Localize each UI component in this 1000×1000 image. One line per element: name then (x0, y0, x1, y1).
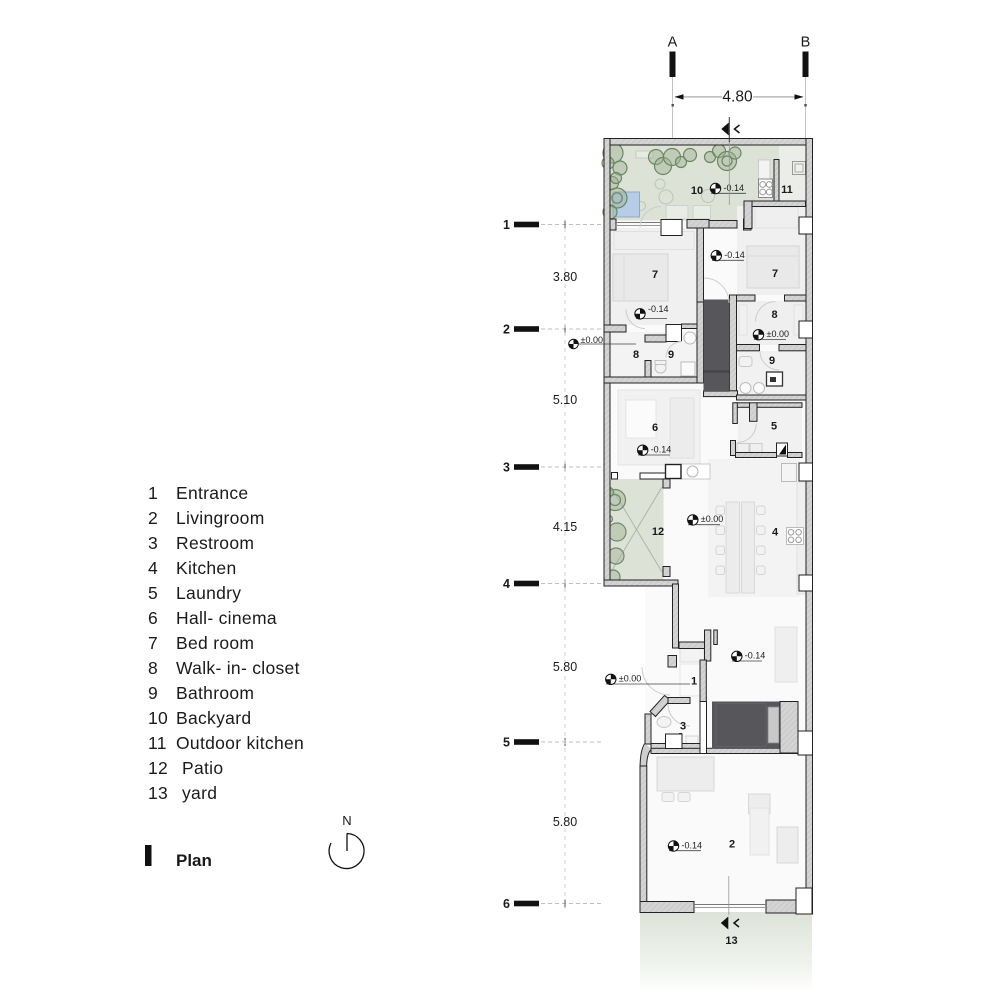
svg-text:9: 9 (668, 349, 674, 361)
svg-text:Backyard: Backyard (176, 708, 251, 728)
svg-text:6: 6 (652, 422, 658, 434)
svg-text:1: 1 (148, 483, 158, 503)
svg-text:±0.00: ±0.00 (767, 329, 789, 339)
svg-text:-0.14: -0.14 (648, 304, 669, 314)
svg-text:8: 8 (633, 349, 639, 361)
svg-text:7: 7 (772, 268, 778, 280)
svg-text:Livingroom: Livingroom (176, 508, 265, 528)
svg-text:4: 4 (772, 527, 779, 539)
svg-text:Bed room: Bed room (176, 633, 254, 653)
svg-text:5.10: 5.10 (553, 393, 577, 407)
svg-text:5: 5 (148, 583, 158, 603)
svg-text:9: 9 (148, 683, 158, 703)
svg-text:10: 10 (691, 185, 703, 197)
svg-text:13: 13 (148, 783, 168, 803)
svg-text:5.80: 5.80 (553, 815, 577, 829)
svg-text:12: 12 (148, 758, 168, 778)
svg-text:13: 13 (725, 935, 737, 947)
svg-text:3.80: 3.80 (553, 270, 577, 284)
svg-text:5: 5 (771, 421, 777, 433)
svg-text:10: 10 (148, 708, 168, 728)
svg-text:±0.00: ±0.00 (581, 335, 603, 345)
svg-text:4.15: 4.15 (553, 520, 577, 534)
svg-text:Walk- in- closet: Walk- in- closet (176, 658, 300, 678)
svg-text:3: 3 (148, 533, 158, 553)
svg-text:Bathroom: Bathroom (176, 683, 254, 703)
svg-text:Patio: Patio (182, 758, 223, 778)
svg-text:4.80: 4.80 (722, 89, 753, 106)
svg-text:3: 3 (503, 461, 510, 475)
svg-text:1: 1 (691, 676, 697, 688)
svg-text:yard: yard (182, 783, 217, 803)
svg-text:±0.00: ±0.00 (701, 514, 723, 524)
svg-text:4: 4 (148, 558, 158, 578)
svg-text:Kitchen: Kitchen (176, 558, 236, 578)
svg-text:Outdoor kitchen: Outdoor kitchen (176, 733, 304, 753)
svg-text:±0.00: ±0.00 (619, 674, 641, 684)
svg-text:-0.14: -0.14 (682, 841, 703, 851)
svg-text:2: 2 (729, 839, 735, 851)
svg-text:8: 8 (148, 658, 158, 678)
svg-text:5.80: 5.80 (553, 660, 577, 674)
svg-text:3: 3 (680, 721, 686, 733)
svg-text:6: 6 (148, 608, 158, 628)
svg-text:2: 2 (503, 323, 510, 337)
svg-text:7: 7 (148, 633, 158, 653)
svg-text:8: 8 (771, 309, 777, 321)
svg-text:4: 4 (503, 577, 510, 591)
svg-text:12: 12 (652, 526, 664, 538)
svg-text:-0.14: -0.14 (651, 445, 672, 455)
svg-text:Plan: Plan (176, 851, 212, 870)
svg-text:Hall- cinema: Hall- cinema (176, 608, 277, 628)
svg-text:N: N (342, 813, 351, 828)
svg-text:6: 6 (503, 897, 510, 911)
svg-text:Laundry: Laundry (176, 583, 241, 603)
svg-text:Entrance: Entrance (176, 483, 248, 503)
svg-text:7: 7 (652, 269, 658, 281)
svg-text:-0.14: -0.14 (724, 250, 745, 260)
svg-text:B: B (801, 35, 811, 51)
svg-text:-0.14: -0.14 (724, 183, 745, 193)
svg-text:5: 5 (503, 736, 510, 750)
svg-text:-0.14: -0.14 (745, 651, 766, 661)
svg-text:1: 1 (503, 218, 510, 232)
svg-text:Restroom: Restroom (176, 533, 254, 553)
svg-text:A: A (668, 35, 678, 51)
svg-text:2: 2 (148, 508, 158, 528)
svg-text:11: 11 (148, 733, 167, 753)
svg-text:11: 11 (781, 184, 793, 196)
svg-text:9: 9 (769, 355, 775, 367)
